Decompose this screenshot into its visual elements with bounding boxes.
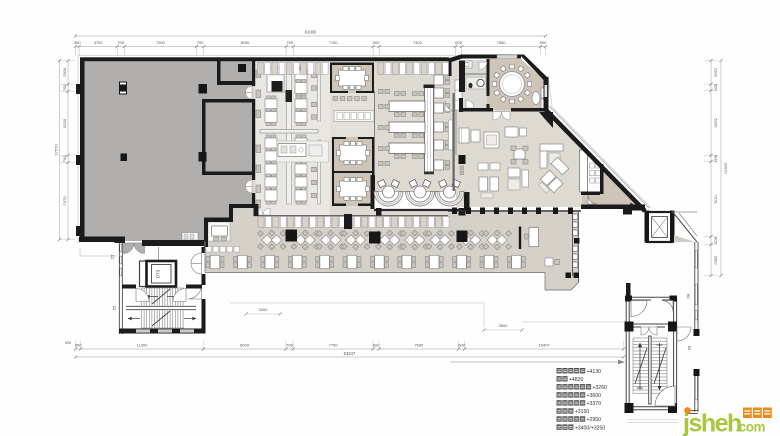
svg-text:61000: 61000 bbox=[305, 30, 317, 35]
svg-text:11900: 11900 bbox=[137, 343, 149, 348]
svg-text:C8: C8 bbox=[687, 294, 691, 299]
svg-text:.com: .com bbox=[736, 420, 766, 435]
svg-text:2300: 2300 bbox=[62, 67, 67, 77]
svg-text:7750: 7750 bbox=[329, 343, 339, 348]
svg-text:350: 350 bbox=[74, 40, 81, 45]
svg-text:700: 700 bbox=[286, 40, 293, 45]
svg-text:3700: 3700 bbox=[94, 40, 104, 45]
svg-text:800: 800 bbox=[714, 237, 719, 244]
svg-text:15407: 15407 bbox=[539, 343, 551, 348]
svg-text:7650: 7650 bbox=[497, 40, 507, 45]
svg-text:700: 700 bbox=[197, 40, 204, 45]
svg-text:+3400/+3250: +3400/+3250 bbox=[575, 425, 606, 431]
svg-text:8000: 8000 bbox=[240, 343, 250, 348]
svg-text:700: 700 bbox=[286, 343, 293, 348]
svg-text:2300: 2300 bbox=[714, 68, 719, 78]
svg-text:8000: 8000 bbox=[240, 40, 250, 45]
svg-text:+3370: +3370 bbox=[587, 401, 602, 407]
svg-text:600: 600 bbox=[373, 343, 380, 348]
svg-text:53247: 53247 bbox=[344, 351, 356, 356]
svg-text:700: 700 bbox=[62, 84, 67, 91]
svg-text:3500: 3500 bbox=[499, 323, 509, 328]
svg-text:500: 500 bbox=[75, 343, 82, 348]
svg-text:600: 600 bbox=[458, 343, 465, 348]
svg-text:600: 600 bbox=[714, 155, 719, 162]
svg-text:7279: 7279 bbox=[714, 194, 719, 204]
svg-text:7400: 7400 bbox=[413, 40, 423, 45]
svg-text:600: 600 bbox=[714, 84, 719, 91]
svg-text:+2950: +2950 bbox=[587, 417, 602, 423]
svg-text:6200: 6200 bbox=[62, 118, 67, 128]
svg-text:500: 500 bbox=[540, 40, 547, 45]
svg-text:+3600: +3600 bbox=[587, 393, 602, 399]
svg-text:700: 700 bbox=[117, 40, 124, 45]
svg-text:jsheh: jsheh bbox=[682, 410, 741, 436]
svg-text:17570: 17570 bbox=[54, 144, 59, 156]
svg-text:DT3: DT3 bbox=[156, 269, 161, 278]
svg-text:C5: C5 bbox=[113, 306, 117, 311]
svg-text:C8: C8 bbox=[688, 346, 692, 351]
svg-text:7750: 7750 bbox=[329, 40, 339, 45]
svg-text:C5: C5 bbox=[111, 255, 115, 260]
svg-text:20970: 20970 bbox=[724, 162, 729, 174]
svg-text:700: 700 bbox=[62, 155, 67, 162]
svg-text:600: 600 bbox=[455, 40, 462, 45]
svg-text:600: 600 bbox=[373, 40, 380, 45]
svg-text:3000: 3000 bbox=[713, 256, 718, 266]
svg-text:3200: 3200 bbox=[259, 307, 269, 312]
svg-text:7000: 7000 bbox=[156, 40, 166, 45]
svg-text:6300: 6300 bbox=[713, 118, 718, 128]
svg-text:+4130: +4130 bbox=[587, 369, 602, 375]
svg-text:+3150: +3150 bbox=[575, 409, 590, 415]
svg-text:7470: 7470 bbox=[62, 196, 67, 206]
svg-text:500: 500 bbox=[65, 341, 71, 345]
svg-text:+4820: +4820 bbox=[569, 377, 584, 383]
svg-text:7690: 7690 bbox=[414, 343, 424, 348]
svg-text:+3260: +3260 bbox=[592, 385, 607, 391]
